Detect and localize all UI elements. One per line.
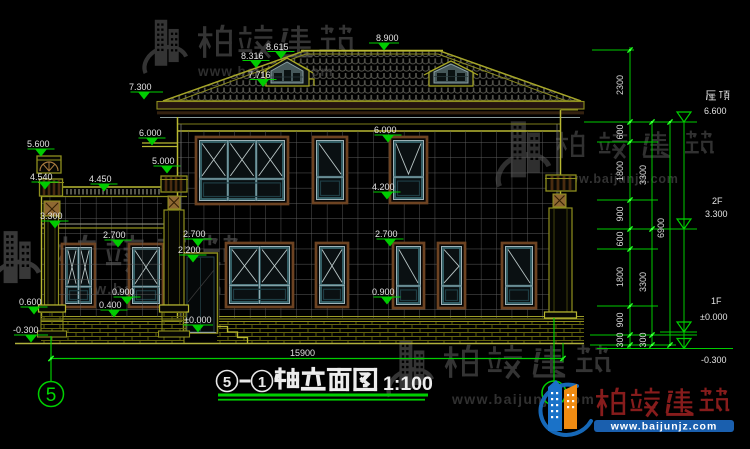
svg-text:1:100: 1:100 (383, 373, 433, 395)
svg-text:7.716: 7.716 (248, 70, 271, 80)
svg-text:0.900: 0.900 (372, 287, 395, 297)
svg-text:1: 1 (258, 374, 266, 391)
svg-text:8.316: 8.316 (241, 51, 264, 61)
svg-text:±0.000: ±0.000 (700, 312, 727, 322)
svg-text:5: 5 (223, 374, 231, 391)
svg-text:900: 900 (615, 312, 625, 327)
svg-text:15900: 15900 (290, 348, 315, 358)
svg-text:2.700: 2.700 (103, 230, 126, 240)
svg-text:0.400: 0.400 (99, 300, 122, 310)
svg-text:1F: 1F (711, 296, 722, 306)
svg-text:5: 5 (46, 385, 57, 406)
svg-text:8.900: 8.900 (376, 33, 399, 43)
svg-text:3300: 3300 (638, 272, 648, 292)
svg-text:4.200: 4.200 (372, 182, 395, 192)
svg-text:www.baijunjz.com: www.baijunjz.com (610, 421, 718, 433)
svg-text:8.615: 8.615 (266, 42, 289, 52)
svg-text:3300: 3300 (638, 165, 648, 185)
svg-text:0.600: 0.600 (19, 297, 42, 307)
svg-text:1800: 1800 (615, 267, 625, 287)
svg-text:900: 900 (615, 206, 625, 221)
svg-text:2300: 2300 (615, 75, 625, 95)
svg-text:2.200: 2.200 (178, 245, 201, 255)
svg-text:±0.000: ±0.000 (184, 315, 211, 325)
svg-text:600: 600 (615, 124, 625, 139)
svg-text:-0.300: -0.300 (13, 325, 39, 335)
svg-text:6.000: 6.000 (139, 128, 162, 138)
svg-text:300: 300 (615, 332, 625, 347)
svg-text:2F: 2F (712, 196, 723, 206)
svg-text:2.700: 2.700 (375, 229, 398, 239)
svg-text:4.450: 4.450 (89, 174, 112, 184)
svg-text:3.300: 3.300 (40, 211, 63, 221)
svg-text:0.900: 0.900 (112, 287, 135, 297)
svg-text:6900: 6900 (656, 218, 666, 238)
svg-text:1800: 1800 (615, 161, 625, 181)
svg-text:300: 300 (638, 332, 648, 347)
svg-text:2.700: 2.700 (183, 229, 206, 239)
svg-text:6.000: 6.000 (374, 125, 397, 135)
svg-text:7.300: 7.300 (129, 82, 152, 92)
svg-text:6.600: 6.600 (704, 106, 727, 116)
svg-text:-0.300: -0.300 (701, 355, 727, 365)
svg-text:4.540: 4.540 (30, 172, 53, 182)
svg-text:5.000: 5.000 (152, 156, 175, 166)
svg-text:600: 600 (615, 231, 625, 246)
svg-text:3.300: 3.300 (705, 209, 728, 219)
svg-text:5.600: 5.600 (27, 139, 50, 149)
